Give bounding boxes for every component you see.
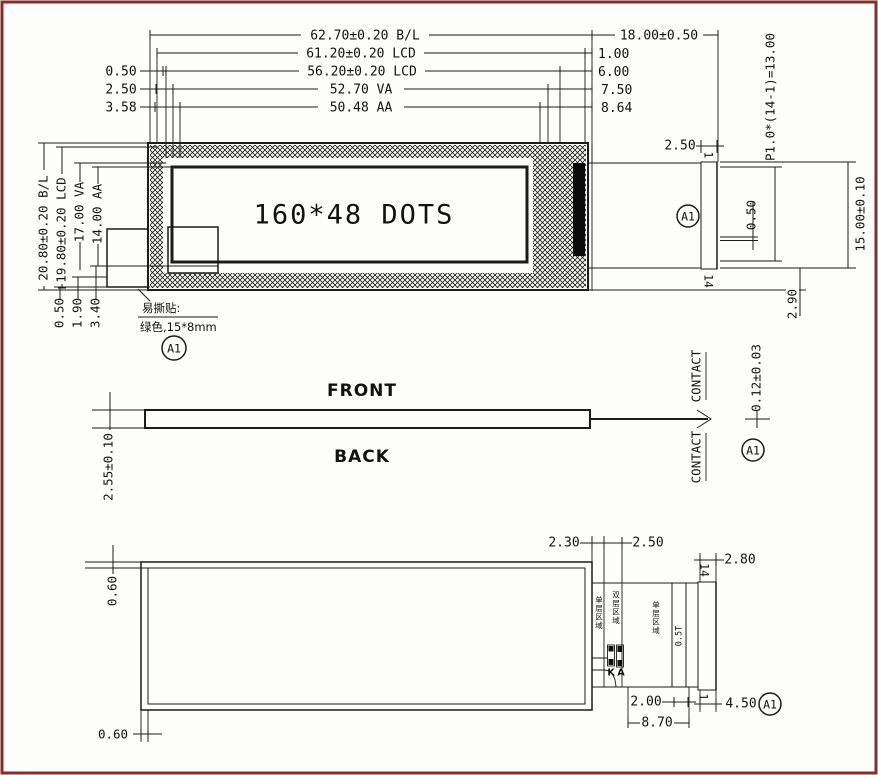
offset-bottom-050: 0.50 [52, 298, 67, 328]
offset-left-250: 2.50 [105, 83, 136, 98]
offset-top-060: 0.60 [105, 576, 120, 606]
dim-gap-line [580, 537, 632, 549]
dim-200-line [662, 697, 696, 707]
dim-thickness: 2.55±0.10 [101, 433, 116, 501]
dim-tail-length: 8.70 [641, 716, 672, 731]
pin-14-label-back: 14 [698, 563, 712, 577]
dim-lcd-inner-width: 56.20±0.20 LCD [307, 65, 417, 80]
dim-060t-ext [85, 562, 148, 568]
offset-right-864: 8.64 [601, 101, 632, 116]
offset-left-358: 3.58 [105, 101, 136, 116]
detail-ref-label: A1 [167, 342, 181, 356]
led-pad-marks [609, 646, 623, 666]
offset-right-600: 6.00 [598, 65, 629, 80]
pin-14-label: 14 [702, 274, 716, 288]
offset-right-100: 1.00 [598, 47, 629, 62]
dim-thickness-ext [92, 410, 145, 428]
back-outline [141, 562, 592, 710]
page-border [2, 2, 876, 773]
offset-right-750: 7.50 [601, 83, 632, 98]
contact-comb [701, 162, 717, 269]
dim-end-450: 4.50 [725, 697, 756, 712]
back-label: BACK [334, 447, 390, 467]
dim-tail-offset: 2.90 [785, 289, 800, 319]
dim-050-ext [720, 237, 758, 241]
dim-stiffener-200: 2.00 [630, 695, 661, 710]
contact-label-top: CONTACT [689, 349, 704, 402]
sticker-spec: 绿色,15*8mm [140, 320, 217, 334]
pin-1-label-back: 1 [697, 694, 711, 701]
dim-contact-gap: 0.50 [744, 200, 759, 230]
dim-va-height: 17.00 VA [72, 181, 87, 242]
dim-gap-250: 2.50 [632, 536, 663, 551]
dim-thickness-line [106, 392, 114, 430]
dim-contact-width: 2.50 [664, 139, 695, 154]
dim-450-line [694, 699, 722, 709]
dim-aa-height: 14.00 AA [90, 183, 105, 244]
dim-1500-line [844, 162, 852, 268]
sticker-title: 易撕贴: [142, 301, 180, 315]
dim-lcd-outer-width: 61.20±0.20 LCD [306, 47, 416, 62]
pin-1-label: 1 [702, 152, 716, 159]
front-label: FRONT [327, 381, 397, 401]
dim-contact-thickness: 0.12±0.03 [749, 344, 764, 412]
dim-va-width: 52.70 VA [330, 83, 393, 98]
dim-contact-height: 15.00±0.10 [853, 176, 868, 251]
dim-aa-width: 50.48 AA [330, 101, 393, 116]
dim-gap-230: 2.30 [548, 536, 579, 551]
dim-060t-line [109, 545, 117, 574]
detail-ref-label: A1 [746, 444, 760, 458]
top-view: 62.70±0.20 B/L 61.20±0.20 LCD 56.20±0.20… [36, 28, 868, 360]
area-single-layer-1: 单层区域 [594, 595, 603, 630]
stiffener-label: 0.5T [675, 626, 685, 646]
detail-ref-label: A1 [681, 210, 695, 224]
offset-bottom-060: 0.60 [98, 727, 128, 742]
detail-ref-label: A1 [763, 698, 777, 712]
area-double-layer: 双层区域 [611, 591, 620, 625]
dim-1500-ext [720, 162, 856, 268]
dim-fpc-length: 18.00±0.50 [620, 29, 698, 44]
dim-060b-ext [141, 710, 148, 742]
offset-left-050: 0.50 [105, 65, 136, 80]
dim-060b-line [133, 729, 162, 739]
offset-bottom-190: 1.90 [70, 298, 85, 328]
dots-label: 160*48 DOTS [254, 200, 455, 231]
contact-label-bottom: CONTACT [689, 430, 704, 483]
led-a-label: A [617, 668, 625, 679]
dim-pitch: P1.0*(14-1)=13.00 [763, 33, 778, 161]
lcd-module-drawing: 62.70±0.20 B/L 61.20±0.20 LCD 56.20±0.20… [0, 0, 878, 775]
dim-bl-height: 20.80±0.20 B/L [36, 175, 51, 280]
module-side-profile [145, 410, 590, 428]
drawing-page: 62.70±0.20 B/L 61.20±0.20 LCD 56.20±0.20… [0, 0, 878, 775]
zebra-strip [573, 163, 585, 256]
dim-pitch-line [771, 167, 779, 261]
dim-comb-width: 2.80 [724, 553, 755, 568]
fpc-tail-back: K A 单层区域 双层区域 单层区域 0.5T [592, 582, 716, 690]
offset-bottom-340: 3.40 [88, 298, 103, 328]
side-view: FRONT BACK 2.55±0.10 CONTACT CONTACT 0.1… [92, 344, 770, 501]
dim-lcd-height: 19.80±0.20 LCD [54, 177, 69, 282]
fpc-tail-top [588, 143, 717, 291]
led-k-label: K [607, 668, 615, 679]
contact-comb-back [698, 582, 716, 690]
area-single-layer-2: 单层区域 [651, 600, 660, 635]
tear-sticker-tab [107, 229, 148, 287]
back-view: 0.60 0.60 K A 单层区域 双层区域 单层区域 0.5T [85, 536, 781, 743]
back-hatched-area [148, 568, 585, 704]
dim-bl-width: 62.70±0.20 B/L [310, 29, 420, 44]
